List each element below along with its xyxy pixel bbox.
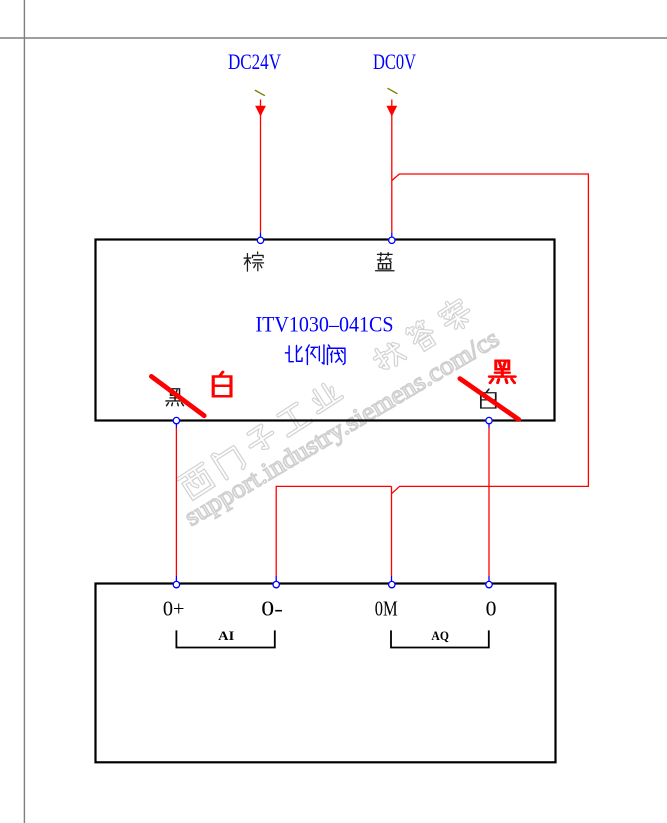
svg-text:DC0V: DC0V: [373, 49, 416, 74]
svg-text:0-: 0-: [261, 597, 283, 621]
svg-text:AI: AI: [218, 628, 234, 643]
svg-text:0M: 0M: [375, 597, 398, 621]
svg-text:0+: 0+: [163, 597, 185, 621]
svg-text:ITV1030–041CS: ITV1030–041CS: [256, 312, 394, 337]
svg-text:AQ: AQ: [431, 628, 449, 643]
svg-text:DC24V: DC24V: [228, 49, 281, 74]
svg-text:0: 0: [486, 597, 497, 621]
